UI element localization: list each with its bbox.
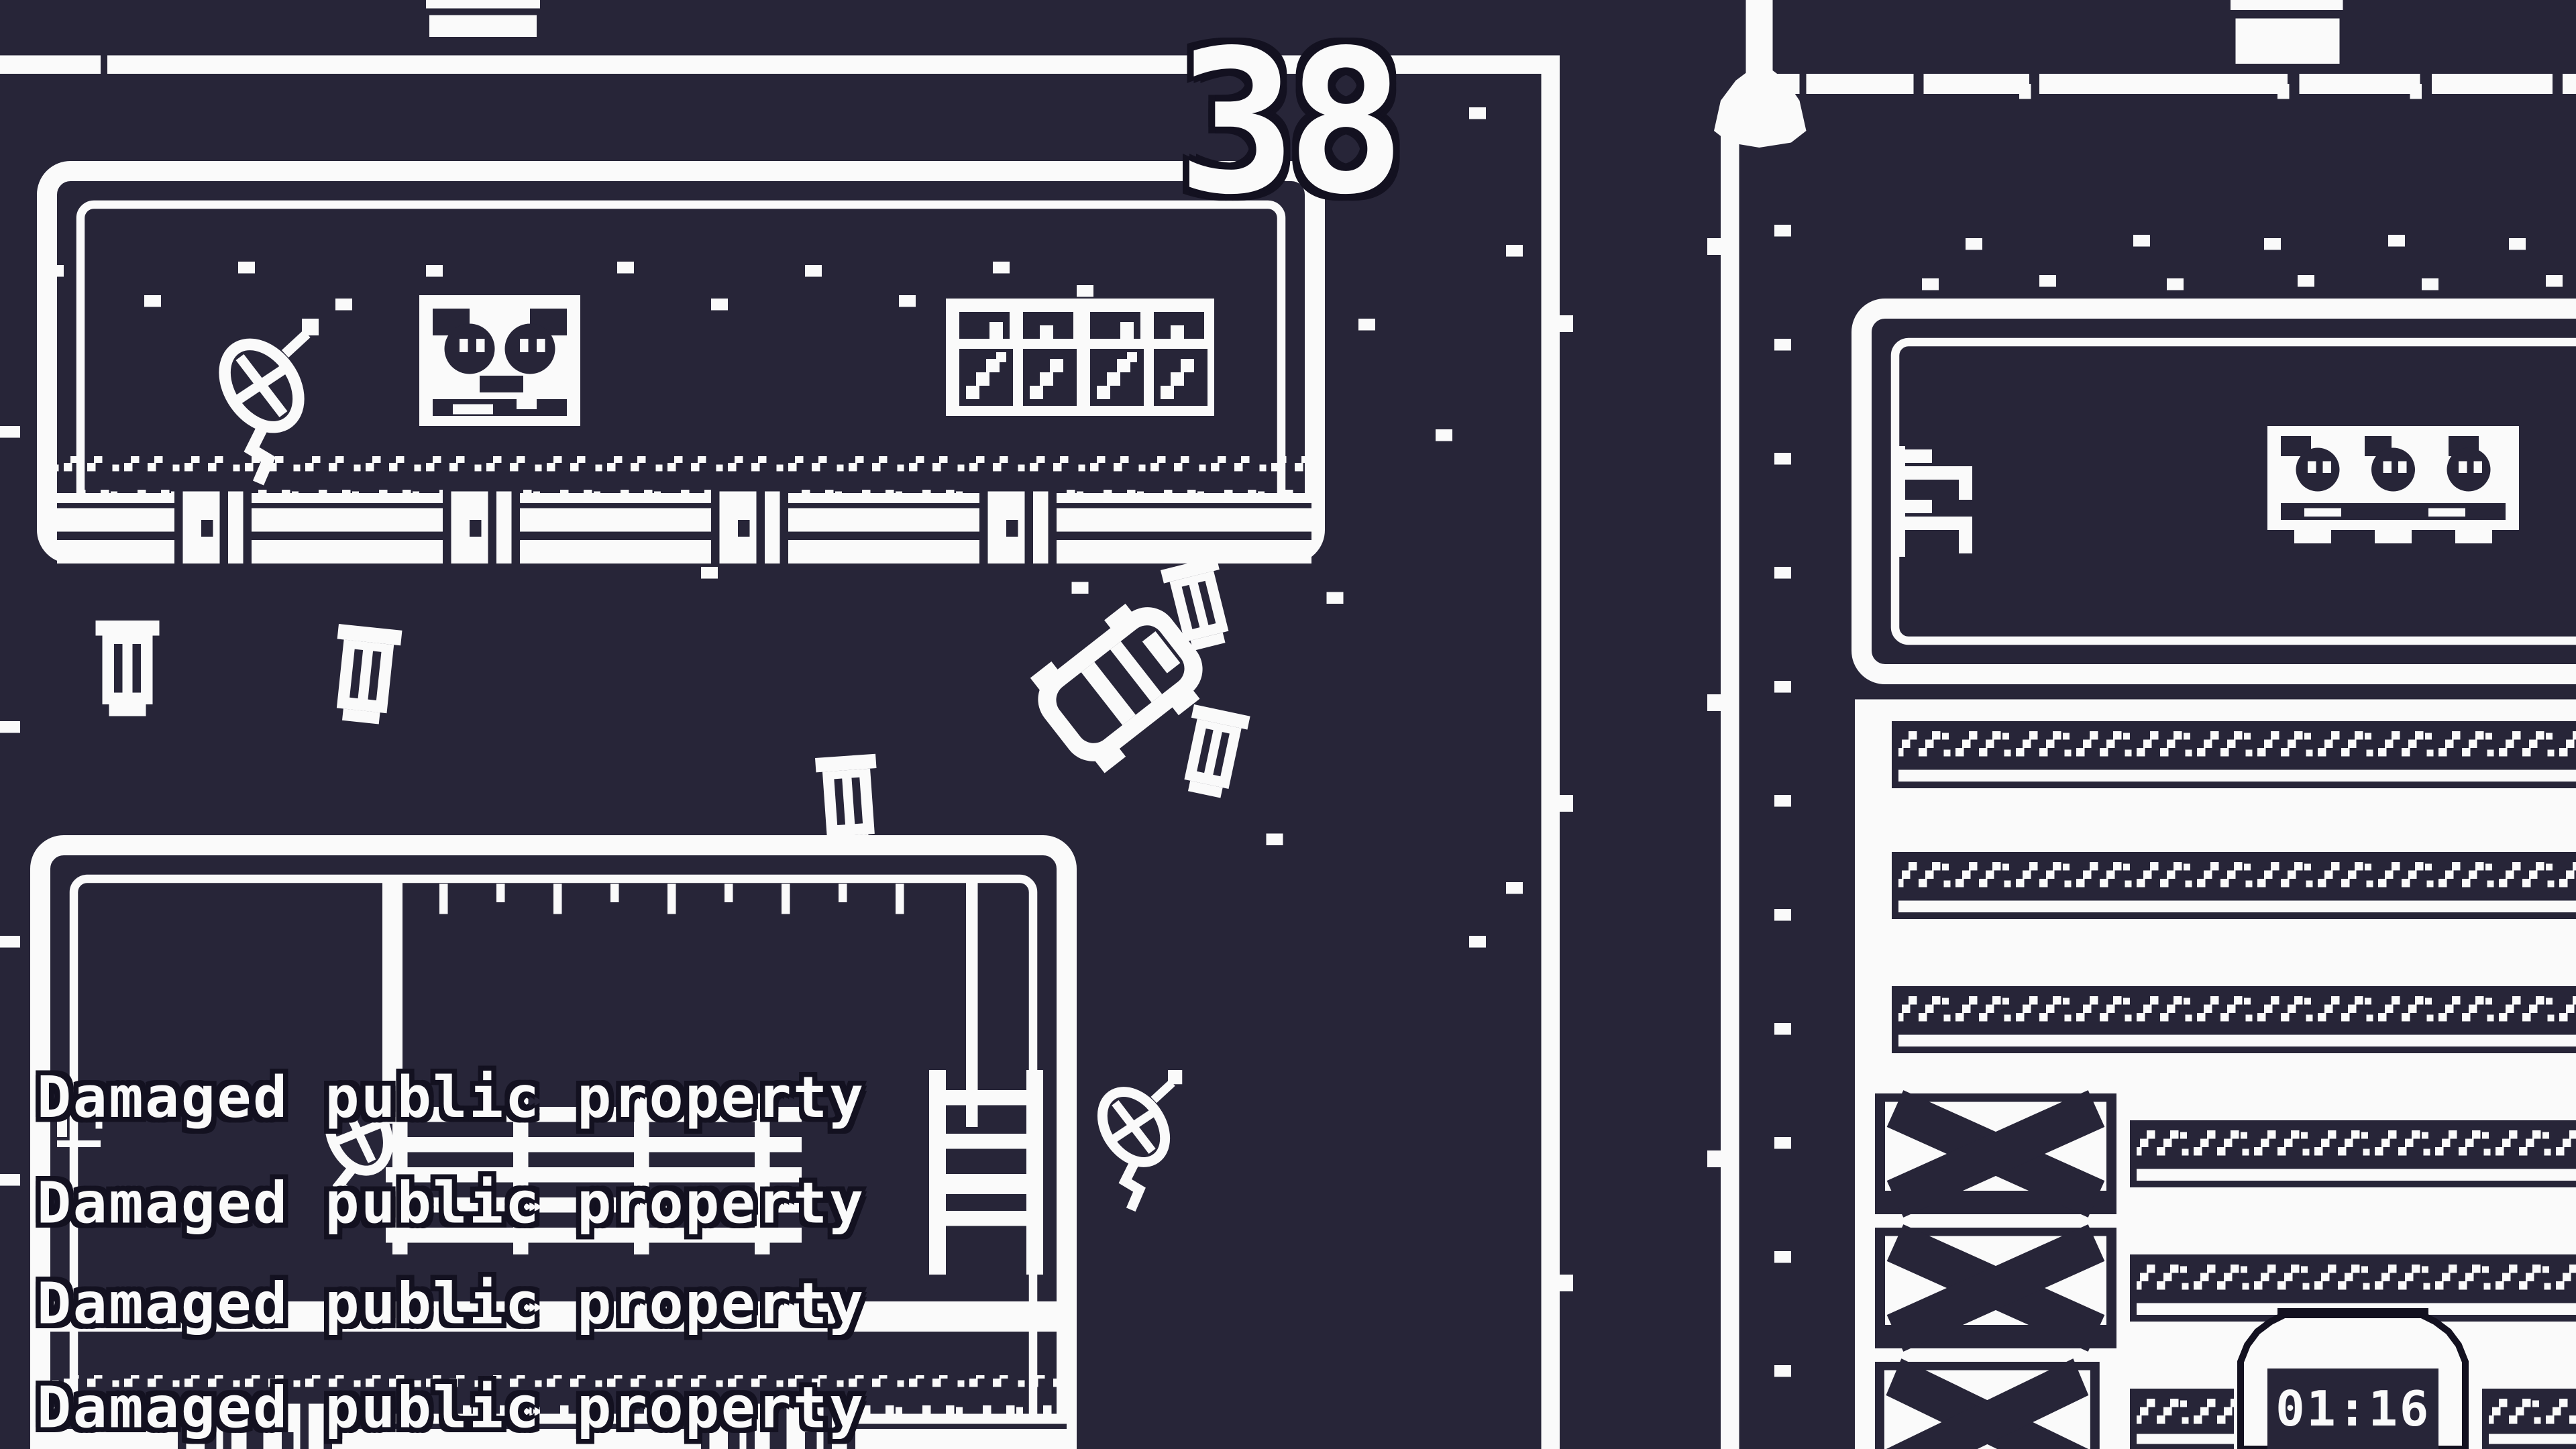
message-damaged-property-3: Damaged public property [37, 1277, 865, 1334]
message-damaged-property-4: Damaged public property [37, 1381, 865, 1438]
timer-countdown: 01:16 [2267, 1372, 2438, 1446]
message-damaged-property-1: Damaged public property [37, 1070, 865, 1127]
door-icon [711, 483, 788, 563]
window-grid-icon [946, 299, 1214, 416]
door-icon [443, 483, 520, 563]
window-faces-wide-icon [2267, 426, 2519, 543]
game-viewport[interactable]: 38 Damaged public property Damaged publi… [0, 0, 2576, 1449]
crate-x-icon [1875, 1362, 2100, 1449]
window-faces-icon [419, 295, 580, 426]
score-counter: 38 [1177, 23, 1395, 221]
crate-x-icon [1875, 1228, 2116, 1348]
message-damaged-property-2: Damaged public property [37, 1176, 865, 1233]
door-icon [174, 483, 252, 563]
roof-vent-icon [426, 0, 540, 37]
room-edge [966, 875, 978, 1127]
door-icon [979, 483, 1057, 563]
roof-vent-right-icon [2231, 0, 2343, 64]
trash-can-icon [96, 621, 160, 716]
crate-x-icon [1875, 1093, 2116, 1214]
